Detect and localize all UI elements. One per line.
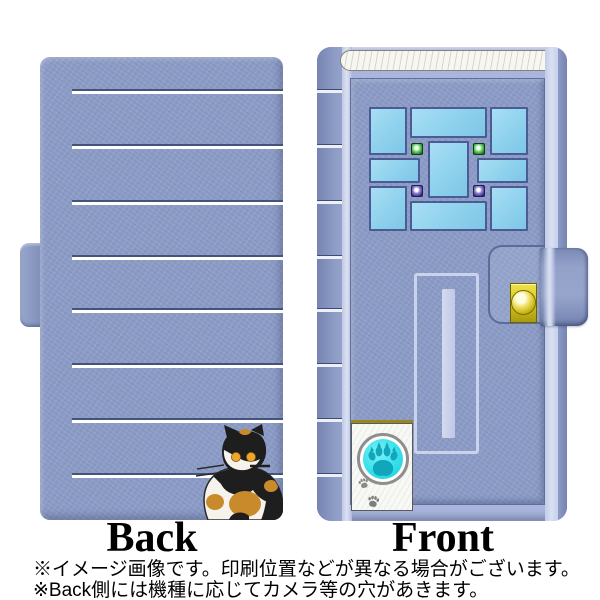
paw-print-icon [363,439,403,479]
magnetic-strap [540,248,588,326]
green-light [473,143,485,155]
clasp-snap-button [511,290,536,315]
back-stripe [72,418,283,423]
small-paw-print-icon [365,492,382,509]
doorbell-box [351,423,413,511]
mail-slot-bar [442,289,455,438]
window-pane [369,107,407,155]
window-pane [490,107,528,155]
cat-head [222,424,270,472]
note-line-1: ※イメージ画像です。印刷位置などが異なる場合がございます。 [33,559,580,580]
window-pane [477,158,528,183]
cat-eye [231,452,240,461]
spine-band [317,89,342,93]
spine-band [317,363,342,367]
window-pane [410,107,487,138]
back-label: Back [106,514,197,562]
window-pane [369,158,420,183]
front-cover [317,47,567,521]
cat-whisker [197,465,224,469]
spine-band [317,308,342,312]
purple-light [411,185,423,197]
back-stripe [72,89,283,94]
note-line-2: ※Back側には機種に応じてカメラ等の穴があきます。 [33,580,580,600]
window-pane [490,186,528,231]
product-image: Back Front ※イメージ画像です。印刷位置などが異なる場合がございます。… [0,0,600,600]
back-stripe [72,363,283,368]
back-stripe [72,144,283,149]
window-pane [428,141,469,198]
spine-band [317,473,342,477]
front-label: Front [392,514,494,562]
window-pane [369,186,407,231]
purple-light [473,185,485,197]
back-stripe [72,308,283,313]
door-transom-window [340,50,557,71]
front-spine [317,47,342,521]
back-stripe [72,200,283,205]
clasp-gold-plate [510,283,537,323]
cat-eye [246,452,255,461]
spine-band [317,200,342,204]
spine-band [317,418,342,422]
back-stripe [72,255,283,260]
spine-band [317,255,342,259]
green-light [411,143,423,155]
back-cover [40,57,283,520]
doorbell-button [363,439,403,479]
calico-cat-illustration [183,424,283,520]
disclaimer-notes: ※イメージ画像です。印刷位置などが異なる場合がございます。 ※Back側には機種… [33,559,580,600]
spine-band [317,144,342,148]
window-pane [410,201,487,231]
